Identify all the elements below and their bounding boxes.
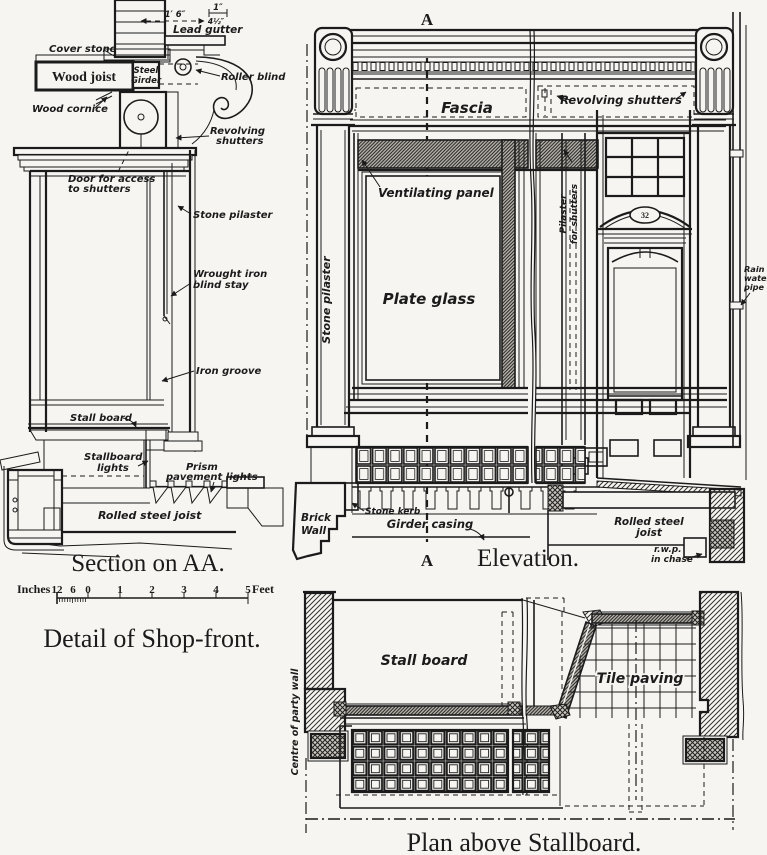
caption-section: Section on AA. (71, 550, 224, 577)
label-blind-stay-2: blind stay (193, 280, 249, 291)
entrance-glass-band (592, 614, 698, 623)
section-cellar-vault-detail (0, 452, 64, 550)
door-transom-window (606, 138, 684, 196)
plan-pavement-lights-grid (336, 726, 563, 808)
door-number: 32 (641, 211, 649, 220)
book-figure-shopfront: Cover stone 1″ 1′ 6″ 4½″ Lead gutter Woo… (0, 0, 767, 855)
scale-bar: Inches 12 6 0 1 2 3 4 5 Feet Detail of S… (17, 582, 274, 653)
label-plate-glass: Plate glass (383, 290, 476, 308)
plan-drawing: Centre of party wall Stall board Tile pa… (290, 592, 744, 855)
label-revolving-shutters: Revolving shutters (560, 93, 682, 107)
label-rolled-steel-joist: Rolled steel joist (98, 509, 202, 522)
label-steel-girder-1: Steel (134, 66, 160, 76)
plate-glass-pane (366, 176, 500, 380)
section-drawing: Cover stone 1″ 1′ 6″ 4½″ Lead gutter Woo… (0, 0, 286, 577)
label-tile-paving: Tile paving (597, 671, 684, 687)
label-ventilating-panel: Ventilating panel (378, 186, 495, 200)
roller-blind-coil (175, 59, 191, 75)
plan-sill-band (336, 706, 522, 715)
plan-right-of-break (526, 598, 564, 715)
pilaster-for-shutters-strip (536, 133, 585, 445)
label-stallboard-lights-2: lights (97, 463, 129, 474)
label-steel-girder-2: Girder (131, 76, 162, 86)
label-brick-wall-2: Wall (301, 525, 327, 537)
label-centre-party-wall: Centre of party wall (290, 668, 301, 776)
scale-unit-feet: Feet (252, 582, 274, 596)
label-stall-board-plan: Stall board (381, 653, 469, 669)
scale-tick-6: 6 (70, 584, 76, 596)
figure-canvas: Cover stone 1″ 1′ 6″ 4½″ Lead gutter Woo… (0, 0, 767, 855)
section-pavement-kerb (227, 477, 283, 526)
scale-unit-inches: Inches (17, 582, 51, 596)
label-door-access-2: to shutters (68, 184, 131, 195)
label-wood-cornice: Wood cornice (32, 104, 108, 115)
label-prism-lights-2: pavement lights (165, 472, 258, 483)
section-stallboard (28, 424, 202, 451)
section-cornice (14, 148, 196, 171)
label-brick-wall-1: Brick (301, 512, 332, 524)
door-leaf (608, 248, 682, 400)
elevation-entablature (345, 30, 728, 131)
label-stone-pilaster-elev: Stone pilaster (320, 256, 333, 344)
label-stallboard-lights-1: Stallboard (84, 452, 143, 463)
marker-A-bottom: A (421, 551, 434, 570)
section-window-frame (30, 150, 195, 452)
label-rsj-elev-2: joist (634, 527, 663, 539)
caption-elevation: Elevation. (477, 545, 579, 572)
elevation-drawing: A A (293, 10, 767, 572)
glass-line (147, 178, 150, 400)
label-stall-board: Stall board (70, 413, 133, 424)
dim-one-inch: 1″ (213, 3, 223, 13)
rain-water-pipe (730, 12, 750, 480)
label-blind-stay-1: Wrought iron (193, 269, 267, 280)
label-wood-joist: Wood joist (52, 70, 117, 85)
label-rain-3: pipe (743, 282, 765, 292)
label-rwp-2: in chase (651, 555, 693, 565)
label-lead-gutter: Lead gutter (173, 24, 243, 36)
caption-plan: Plan above Stallboard. (407, 828, 642, 855)
label-stone-kerb: Stone kerb (365, 507, 421, 517)
label-iron-groove: Iron groove (196, 366, 261, 377)
wood-cornice-molding (96, 92, 112, 104)
label-stone-pilaster: Stone pilaster (193, 210, 274, 221)
label-pilaster-for-shutters-2: for shutters (570, 183, 580, 244)
caption-detail: Detail of Shop-front. (43, 624, 260, 653)
label-rwp-1: r.w.p. (654, 545, 682, 555)
dim-one-foot-six: 1′ 6″ (165, 10, 186, 20)
marker-A-top: A (421, 10, 434, 29)
label-cover-stone: Cover stone (49, 44, 117, 55)
label-fascia: Fascia (441, 99, 493, 117)
label-girder-casing: Girder casing (387, 517, 474, 531)
section-labels: Cover stone 1″ 1′ 6″ 4½″ Lead gutter Woo… (32, 3, 286, 522)
plan-splayed-entrance (550, 610, 704, 719)
label-pilaster-for-shutters-1: Pilaster (559, 194, 569, 234)
section-prism-pavement-lights (150, 481, 230, 503)
label-roller-blind: Roller blind (221, 72, 286, 83)
mullion (502, 140, 515, 388)
break-line (530, 30, 536, 483)
section-shutter-box (96, 92, 178, 148)
elevation-left-pilaster (307, 28, 359, 447)
label-revolving-shutters-2: shutters (216, 136, 263, 147)
